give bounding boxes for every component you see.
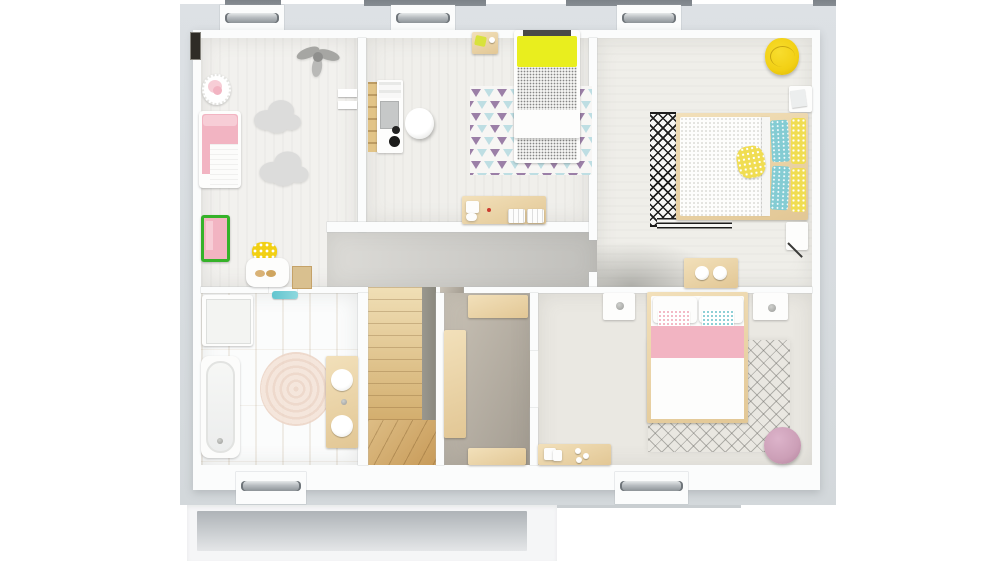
door-mat <box>292 266 312 289</box>
staircase-flight <box>368 287 422 420</box>
teal-bath-mat <box>272 291 298 299</box>
wooden-toy <box>266 270 276 277</box>
bathtub-drain <box>217 438 223 444</box>
dark-wall-slot <box>190 32 201 60</box>
wall-stairs-closet <box>436 293 444 465</box>
paper-roll <box>466 213 477 221</box>
bedside-table <box>472 32 498 54</box>
play-table <box>246 258 289 287</box>
pillow-yellow <box>791 168 806 212</box>
red-knob <box>487 208 491 212</box>
bed-blanket-white-fold <box>514 110 580 138</box>
diamond-runner-rug <box>650 112 676 227</box>
desk <box>377 80 403 153</box>
pillow-yellow <box>791 118 806 164</box>
sink-basin <box>331 415 353 437</box>
storage-box <box>466 201 479 213</box>
bench-knob-dot <box>701 272 706 277</box>
pillow-teal <box>770 166 790 211</box>
cloud-rug-small <box>251 93 303 142</box>
bed-duvet <box>210 144 238 185</box>
pillow-teal <box>770 120 790 163</box>
wall-shelf <box>338 101 357 109</box>
wall-bath-top <box>201 287 268 293</box>
bench-knob-dot <box>719 272 724 277</box>
hallway-floor <box>327 232 597 287</box>
window-sill <box>622 13 676 23</box>
lower-floor-edge <box>557 505 741 508</box>
bed-pillow <box>203 115 237 126</box>
round-jute-rug <box>260 352 332 426</box>
window-sill <box>241 481 301 491</box>
window-sill <box>620 481 683 491</box>
notebook-yellow <box>474 35 487 47</box>
stair-railing <box>422 287 436 420</box>
round-yellow-chair <box>765 38 799 75</box>
desk-lamp-base <box>389 136 400 147</box>
cup <box>489 37 495 43</box>
stair-winder-steps <box>368 420 436 465</box>
drawer-unit <box>508 209 525 223</box>
window-sill <box>225 13 279 23</box>
storage-bench <box>684 258 738 288</box>
desk-shelf <box>379 82 401 98</box>
lamp <box>616 302 624 310</box>
toddler-bed <box>199 111 241 188</box>
wall-shelf <box>338 89 357 97</box>
wardrobe-tall <box>444 330 466 438</box>
master-double-bed <box>676 113 808 220</box>
sink-basin <box>331 369 353 391</box>
double-bed-2 <box>647 292 748 423</box>
wardrobe-bottom <box>468 448 526 465</box>
drawer-unit <box>527 209 544 223</box>
wardrobe-top <box>468 295 528 318</box>
wall-kids-middle <box>358 38 366 232</box>
cloud-rug-large <box>256 144 311 195</box>
bed-blanket-yellow <box>517 36 577 67</box>
single-bed <box>514 30 580 163</box>
desk-lamp <box>392 126 400 134</box>
wall-bath-stairs <box>358 293 368 465</box>
wall-hall-top <box>327 222 589 232</box>
jar <box>575 448 581 454</box>
basket-toys <box>213 86 222 95</box>
double-sink-vanity <box>326 356 358 448</box>
nightstand-left <box>603 293 635 320</box>
bathtub <box>201 356 240 458</box>
toy-chest <box>201 215 230 262</box>
wall-middle-master <box>589 272 597 287</box>
floorplan-canvas <box>0 0 1000 561</box>
jar <box>576 457 582 463</box>
laptop <box>380 101 399 129</box>
faucet <box>341 399 347 405</box>
lamp <box>768 304 776 312</box>
shower-glass <box>206 299 251 344</box>
bed-blanket-fold <box>202 144 210 174</box>
wooden-toy <box>255 270 265 277</box>
egg-chair <box>405 108 434 139</box>
toy-basket <box>202 74 231 105</box>
hanging-mobile-toy <box>294 40 342 85</box>
console-shelf <box>538 444 611 465</box>
toy-chest-cushion <box>206 221 213 250</box>
window-sill <box>396 13 450 23</box>
jar <box>583 453 589 459</box>
round-pouf <box>764 427 801 464</box>
chair-seam <box>770 46 795 67</box>
wall-closet-bedroom2 <box>530 293 538 350</box>
wall-shelf-diagonal-item <box>786 222 808 250</box>
ladder-desk-side <box>368 82 377 152</box>
shower-tray <box>202 295 253 346</box>
nightstand-papers <box>789 86 812 112</box>
storage-box <box>553 450 562 461</box>
papers <box>790 89 807 108</box>
duvet-white <box>651 358 744 419</box>
roof-segment <box>813 0 836 6</box>
lower-floor-recess <box>197 511 527 551</box>
dresser-console <box>462 196 546 224</box>
wall-closet-bedroom2 <box>530 408 538 465</box>
nightstand-right <box>753 293 788 320</box>
blanket-pink <box>651 326 744 358</box>
